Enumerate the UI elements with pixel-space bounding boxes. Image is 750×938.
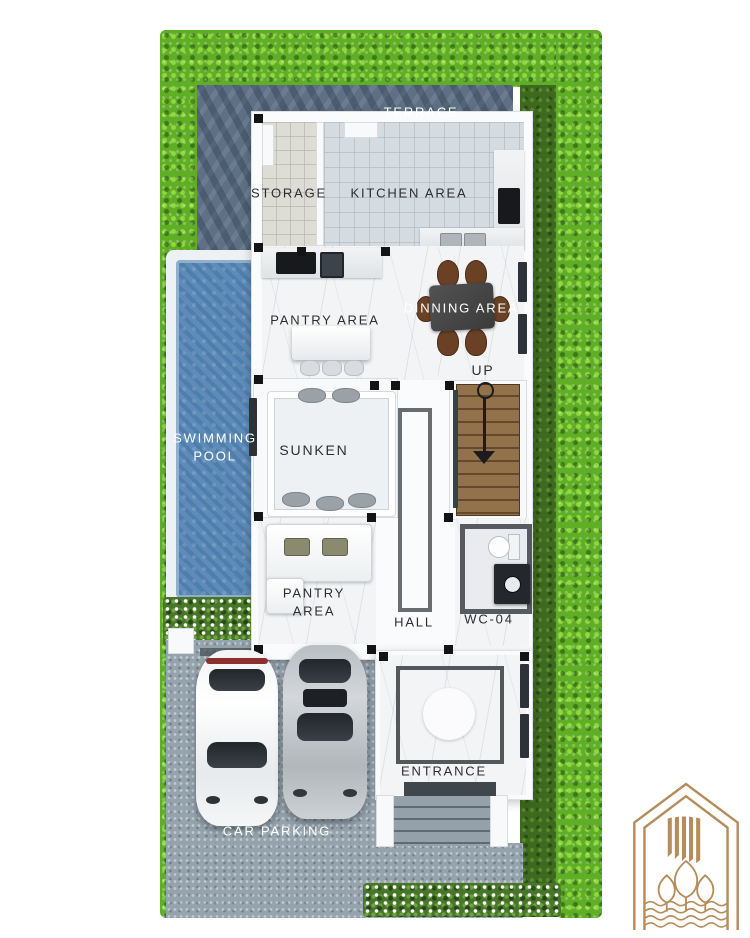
- dining-chair-bottom-2: [465, 328, 487, 356]
- column-marker: [445, 381, 454, 390]
- pantry-lower-sofa: [266, 524, 372, 582]
- label-pantry-upper: PANTRY AREA: [270, 313, 379, 328]
- car-white: [196, 650, 278, 826]
- sunken-cushion-top-2: [332, 388, 360, 403]
- storage-closet: [262, 124, 274, 166]
- sunken-cushion-top-1: [298, 388, 326, 403]
- column-marker: [391, 381, 400, 390]
- house-trees-logo-icon: [626, 780, 746, 932]
- storage-kitchen-divider: [316, 122, 324, 246]
- column-marker: [254, 243, 263, 252]
- label-pantry-lower-line2: AREA: [283, 602, 345, 620]
- kitchen-top-wall-piece: [344, 122, 378, 138]
- car-gray-rear-window: [299, 659, 351, 683]
- brand-logo: [626, 780, 746, 932]
- up-arrow-shaft: [483, 397, 486, 453]
- car-gray-headlight-right: [343, 789, 357, 797]
- label-up: UP: [471, 362, 494, 378]
- shrub-bed-bottom: [363, 883, 561, 917]
- up-arrow-circle: [477, 382, 494, 399]
- sofa-pillow-2: [322, 538, 348, 556]
- column-marker: [254, 114, 263, 123]
- car-white-rear-window: [209, 669, 265, 691]
- label-entrance: ENTRANCE: [401, 764, 487, 779]
- car-gray: [283, 645, 367, 819]
- up-arrow-head: [473, 451, 495, 464]
- label-pantry-lower-line1: PANTRY: [283, 584, 345, 602]
- column-marker: [254, 512, 263, 521]
- column-marker: [520, 652, 529, 661]
- pantry-sink: [320, 252, 344, 278]
- label-swimming-pool-line2: POOL: [173, 447, 257, 465]
- label-terrace: TERRACE: [384, 105, 459, 120]
- column-marker: [370, 381, 379, 390]
- column-marker: [381, 247, 390, 256]
- column-marker: [367, 513, 376, 522]
- island-stool-1: [300, 360, 320, 376]
- entrance-circle-rug: [423, 688, 475, 740]
- entrance-window-right-1: [520, 664, 529, 708]
- car-white-headlight-left: [206, 796, 220, 804]
- hedge-right: [556, 30, 602, 918]
- column-marker: [367, 645, 376, 654]
- entrance-door-mat: [404, 782, 496, 796]
- hall-runner-rug: [398, 408, 432, 612]
- column-marker: [444, 513, 453, 522]
- label-hall: HALL: [394, 615, 434, 630]
- entry-steps: [394, 796, 490, 846]
- car-gray-windshield: [297, 713, 353, 741]
- dining-chair-bottom-1: [437, 328, 459, 356]
- car-white-taillight: [206, 658, 268, 664]
- car-white-windshield: [207, 742, 267, 768]
- label-storage: STORAGE: [251, 186, 327, 201]
- sunken-cushion-bottom-2: [316, 496, 344, 511]
- step-sidewall-left: [376, 795, 394, 847]
- car-gray-headlight-left: [293, 789, 307, 797]
- label-sunken: SUNKEN: [279, 442, 348, 458]
- dining-window-2: [518, 314, 527, 354]
- label-dining: DINNING AREA: [404, 301, 519, 316]
- column-marker: [379, 652, 388, 661]
- label-car-parking: CAR PARKING: [223, 824, 331, 839]
- car-white-headlight-right: [254, 796, 268, 804]
- car-gray-sunroof: [303, 689, 347, 707]
- label-swimming-pool: SWIMMING POOL: [173, 429, 257, 464]
- label-swimming-pool-line1: SWIMMING: [173, 429, 257, 447]
- sofa-pillow-1: [284, 538, 310, 556]
- island-stool-2: [322, 360, 342, 376]
- label-pantry-lower: PANTRY AREA: [283, 584, 345, 619]
- cooktop-panel-kitchen: [498, 188, 520, 224]
- gate-post-left: [168, 628, 194, 654]
- entrance-window-right-2: [520, 714, 529, 758]
- stair-rail: [453, 390, 458, 508]
- dining-window-1: [518, 262, 527, 302]
- hedge-top: [160, 30, 602, 87]
- pantry-island: [292, 326, 370, 360]
- pantry-cooktop: [276, 252, 316, 274]
- wc-vanity-sink: [504, 576, 521, 593]
- column-marker: [254, 375, 263, 384]
- column-marker: [444, 645, 453, 654]
- floor-plan-canvas: TERRACE STORAGE KITCHEN AREA PANTRY AREA…: [0, 0, 750, 938]
- step-sidewall-right: [490, 795, 508, 847]
- label-kitchen: KITCHEN AREA: [351, 186, 468, 201]
- island-stool-3: [344, 360, 364, 376]
- sunken-cushion-bottom-1: [282, 492, 310, 507]
- stairs: [456, 384, 520, 516]
- wc-toilet-bowl: [488, 536, 510, 558]
- label-wc: WC-04: [464, 612, 513, 627]
- column-marker: [297, 247, 306, 256]
- sunken-cushion-bottom-3: [348, 493, 376, 508]
